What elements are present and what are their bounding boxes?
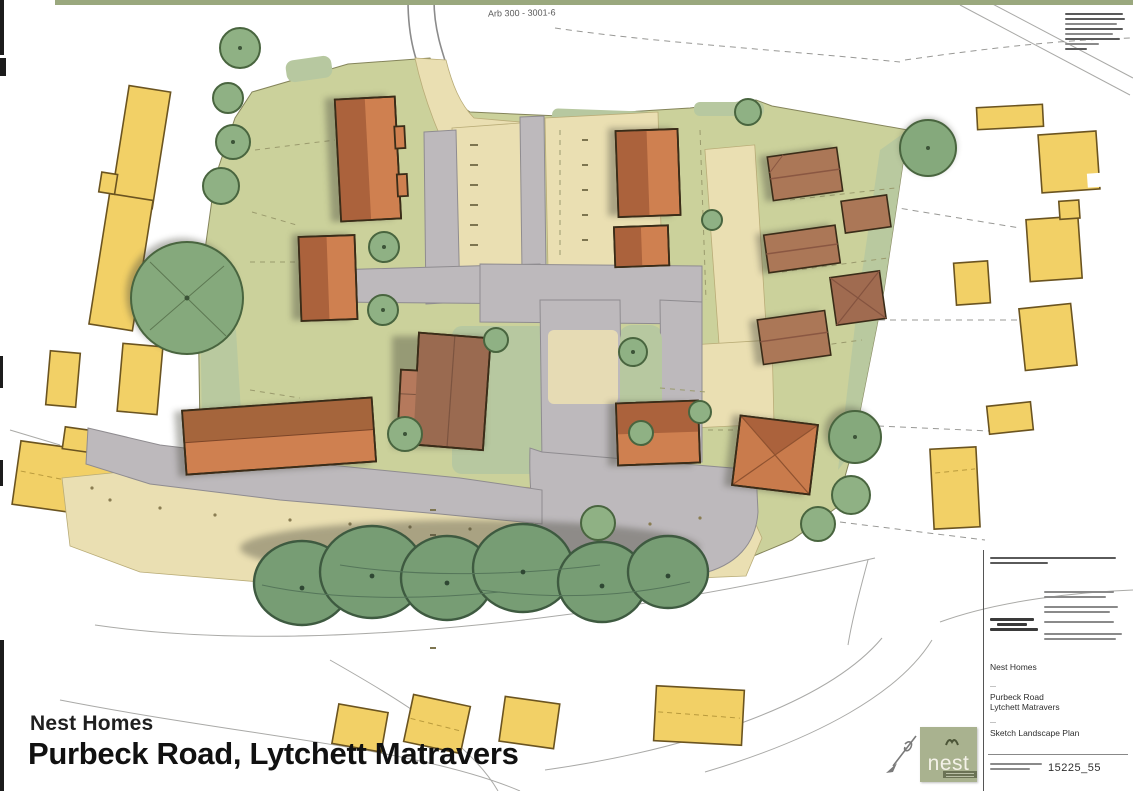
north-arrow-icon — [886, 736, 916, 773]
client-title: Nest Homes — [30, 712, 153, 736]
title-block-client: Nest Homes — [990, 662, 1037, 672]
building-H — [182, 398, 376, 475]
title-block-rule — [988, 754, 1128, 755]
site-plan-drawing — [0, 0, 1133, 791]
sketch-landscape-plan-page: { "titles": { "client": "Nest Homes", "p… — [0, 0, 1133, 791]
scan-edge-mark — [0, 0, 4, 55]
scan-edge-mark — [0, 460, 3, 486]
title-block-small-print — [1044, 588, 1126, 643]
title-block-job: Purbeck Road Lytchett Matravers — [990, 692, 1060, 712]
title-block-drawing: Sketch Landscape Plan — [990, 728, 1079, 738]
drawing-annotation: Arb 300 - 3001-6 — [488, 7, 556, 18]
bird-icon — [944, 736, 960, 747]
drawing-number: 15225_55 — [1048, 762, 1101, 774]
nest-logo: nest — [920, 727, 977, 782]
architect-stamp — [990, 616, 1038, 633]
building-B — [299, 235, 358, 321]
building-G — [732, 416, 818, 495]
title-block-drawing-label: — — [990, 720, 996, 726]
scan-top-strip — [55, 0, 1133, 5]
title-block-notes — [990, 554, 1122, 567]
scan-edge-mark — [0, 58, 6, 76]
title-block-scale-date — [990, 760, 1048, 773]
title-block-job-label: — — [990, 684, 996, 690]
scan-edge-mark — [0, 640, 4, 791]
project-title: Purbeck Road, Lytchett Matravers — [28, 736, 519, 772]
title-block: Nest Homes — Purbeck Road Lytchett Matra… — [983, 550, 1133, 791]
survey-note-lines — [1065, 10, 1127, 53]
nest-logo-strip — [943, 771, 977, 778]
scan-edge-mark — [0, 356, 3, 388]
